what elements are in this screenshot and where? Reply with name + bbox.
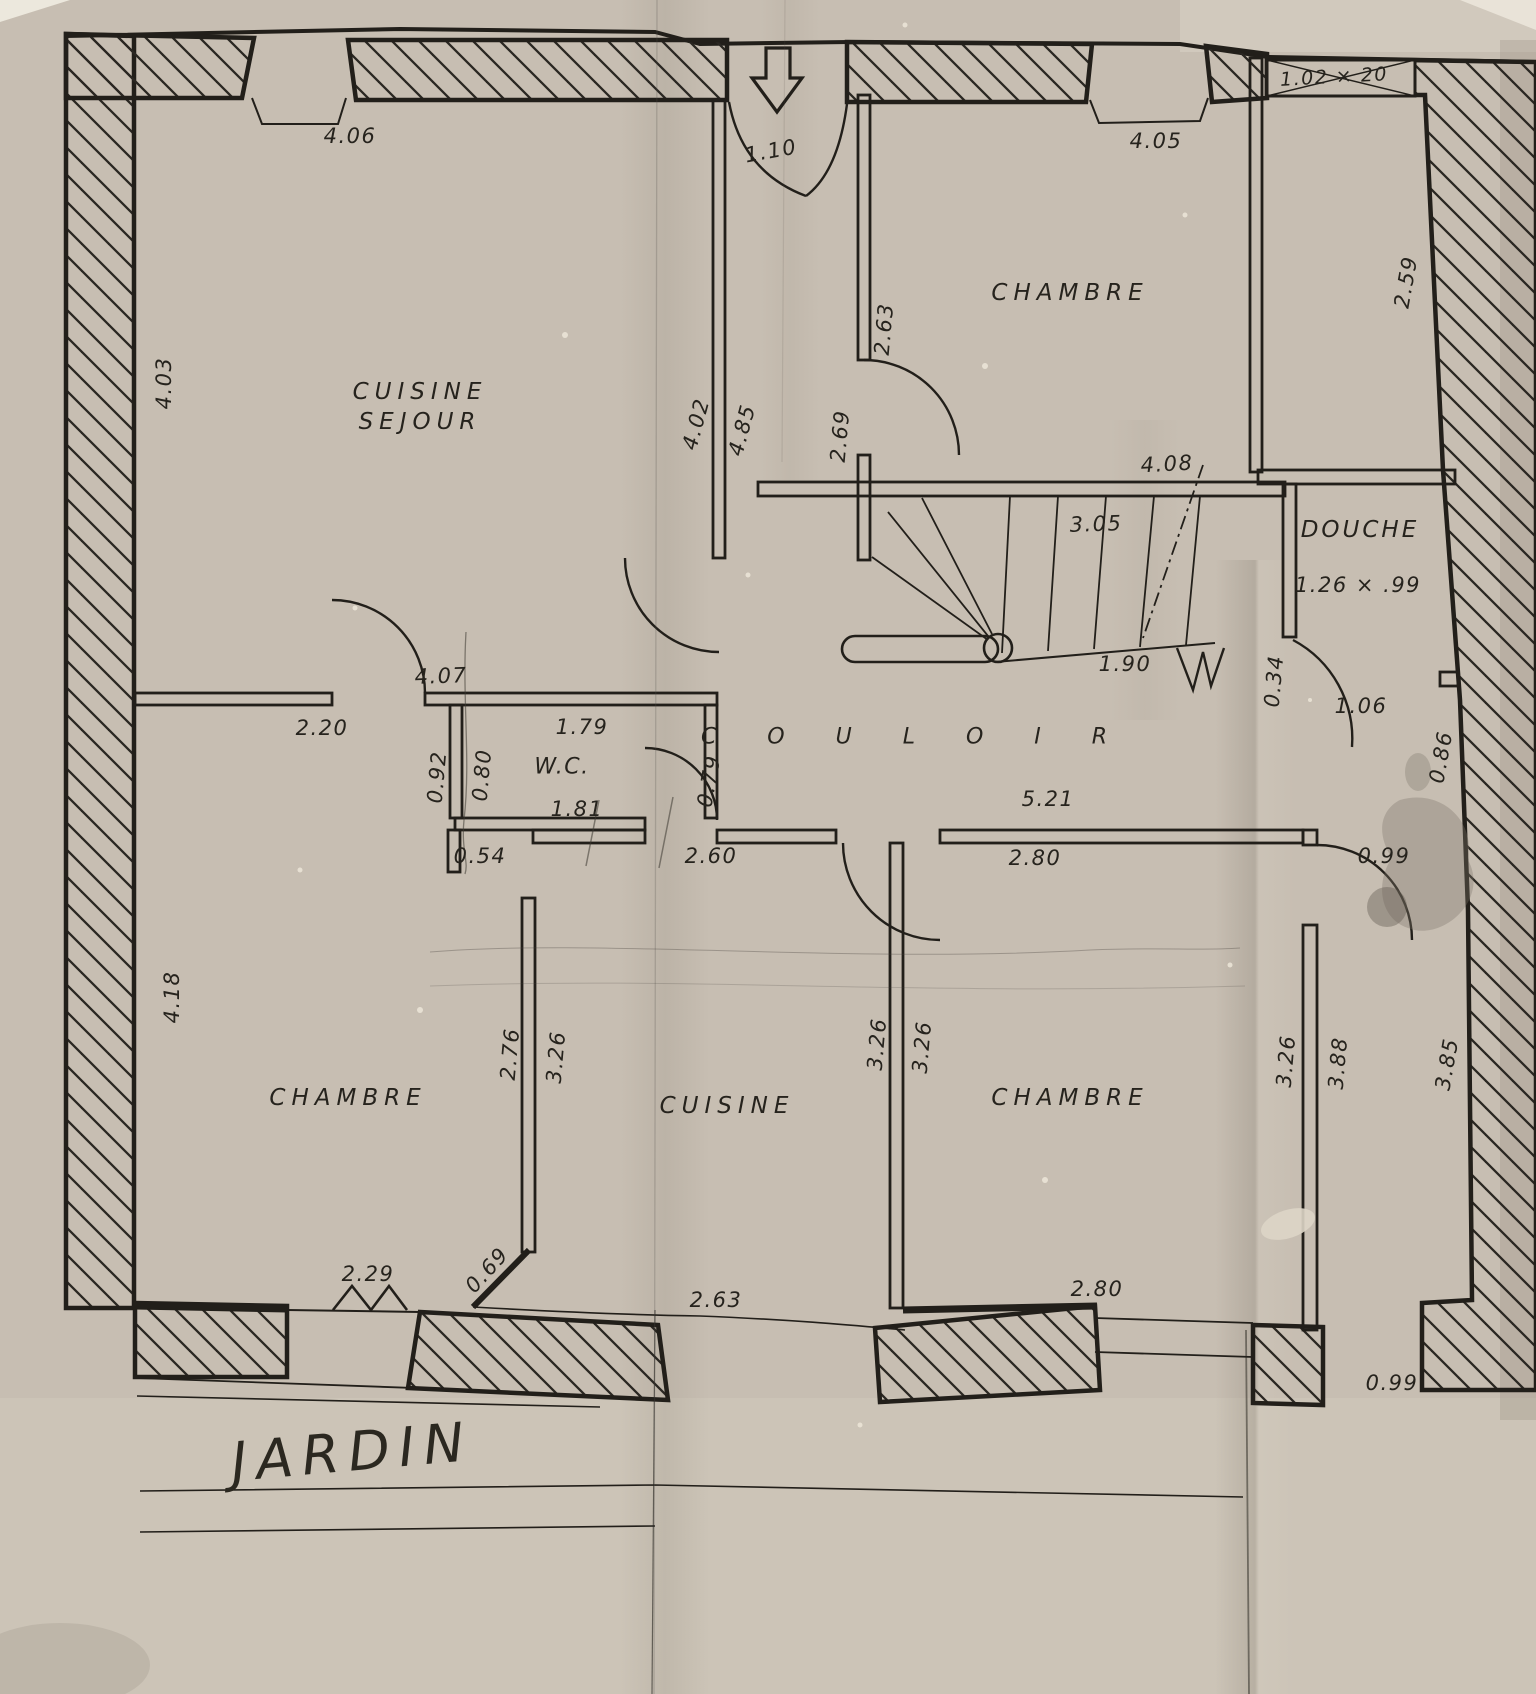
dim-wc-top: 1.79 — [556, 715, 609, 739]
room-label-wc: W.C. — [534, 755, 589, 780]
room-label-cuisine-sejour-line2: SEJOUR — [353, 408, 488, 438]
dim-wc-bottom: 1.81 — [551, 797, 604, 821]
dim-chambre-tr-wall-b: 2.69 — [826, 409, 855, 464]
door-arc-hall-cs — [332, 600, 425, 693]
wall-chambre-tr-left-b — [858, 455, 870, 560]
dim-window-bl: 2.29 — [342, 1262, 395, 1286]
stairs-handrail — [842, 636, 998, 662]
wall-top-d — [1206, 46, 1267, 102]
dim-stairs-top: 4.08 — [1140, 451, 1194, 478]
wall-top-c — [847, 42, 1092, 102]
door-arc-chambre-br — [843, 843, 940, 940]
wall-hall-bottom-b — [717, 830, 836, 843]
wall-douche-top — [1258, 470, 1455, 484]
window-bl-line — [287, 1310, 420, 1312]
dim-top-right: 4.05 — [1130, 129, 1183, 153]
door-arc-chambre-tr — [864, 360, 959, 455]
wall-bottom-b — [408, 1312, 668, 1400]
wall-top-b — [348, 40, 727, 100]
dim-top-left: 4.06 — [324, 124, 377, 148]
dim-hall-left: 2.20 — [296, 716, 349, 740]
dim-chambre-br-right: 3.26 — [1272, 1034, 1301, 1089]
dim-stub: 0.34 — [1260, 654, 1289, 709]
room-label-cuisine: CUISINE — [660, 1093, 795, 1119]
dim-chambre-br-wall-l: 3.26 — [908, 1020, 937, 1075]
dim-cuisine-wall-l: 3.26 — [542, 1030, 571, 1085]
wall-chambre-tr-right — [1250, 58, 1262, 472]
wall-chambre-br-bottom — [903, 1306, 1097, 1310]
room-label-douche: DOUCHE — [1301, 517, 1420, 543]
wall-cuisine-left — [522, 898, 535, 1252]
dim-step: 0.54 — [454, 844, 507, 868]
wall-bottom-c — [875, 1306, 1100, 1402]
dim-wc-in: 0.80 — [468, 748, 497, 803]
room-label-cuisine-sejour-line1: CUISINE — [353, 378, 488, 408]
room-label-chambre-bottom-left: CHAMBRE — [269, 1085, 426, 1111]
french-door-leaves — [333, 1286, 407, 1310]
dim-corridor-a: 3.88 — [1324, 1036, 1353, 1091]
floor-plan: 4.06 1.10 4.05 1.02 × 20 2.59 4.03 CUISI… — [0, 0, 1536, 1694]
dim-chambre-br-bottom: 2.80 — [1071, 1277, 1124, 1301]
wall-bottom-a — [135, 1303, 287, 1377]
dim-chambre-br-top: 2.80 — [1009, 846, 1062, 870]
dim-cuisine-top: 2.60 — [685, 844, 738, 868]
wall-top-a — [66, 34, 254, 98]
wall-bottom-d — [1253, 1325, 1323, 1405]
dim-corridor-door: 0.99 — [1358, 844, 1411, 868]
dim-chambre-tr-wall-a: 2.63 — [870, 302, 899, 357]
dim-chambre-bl-wall: 2.76 — [496, 1027, 525, 1082]
room-label-chambre-top-right: CHAMBRE — [991, 280, 1148, 306]
room-label-couloir: C O U L O I R — [701, 725, 1129, 750]
window-top-center — [1090, 98, 1208, 123]
wall-chambre-bl-bottom — [135, 1306, 287, 1309]
dim-stairs-width: 3.05 — [1069, 511, 1123, 537]
wall-chambre-br-right — [1303, 925, 1317, 1330]
dim-stairs-bottom: 1.90 — [1099, 652, 1152, 676]
wall-jamb-corridor — [1303, 830, 1317, 845]
wall-cuisine-sejour-right — [713, 100, 725, 558]
room-label-chambre-bottom-right: CHAMBRE — [991, 1085, 1148, 1111]
stain-dark — [1367, 887, 1407, 927]
dim-exit-bottom: 0.99 — [1366, 1371, 1419, 1395]
wall-wc-left — [450, 705, 462, 818]
wall-jamb-right — [1440, 672, 1458, 686]
wall-left — [66, 34, 134, 1308]
dim-cuisine-bottom: 2.63 — [690, 1288, 743, 1312]
stairs-winders — [872, 498, 992, 640]
wall-cuisine-right — [890, 843, 903, 1308]
dim-hall-bottom: 5.21 — [1022, 787, 1075, 811]
window-top-left — [252, 98, 346, 124]
dim-wc-out: 0.92 — [423, 750, 452, 805]
dim-cs-left: 4.03 — [152, 357, 176, 410]
dim-cuisine-wall-r: 3.26 — [863, 1017, 892, 1072]
dim-douche-size: 1.26 × .99 — [1295, 573, 1421, 597]
wall-hall-top-a — [135, 693, 332, 705]
dim-hall-top: 4.07 — [414, 663, 468, 689]
wall-stairs-top — [758, 482, 1285, 496]
room-label-cuisine-sejour: CUISINE SEJOUR — [353, 378, 488, 438]
dim-chambre-bl-left: 4.18 — [160, 971, 184, 1024]
wall-chambre-tr-left-a — [858, 95, 870, 360]
thick-walls — [135, 1250, 1097, 1310]
dim-douche-door: 1.06 — [1335, 694, 1388, 718]
